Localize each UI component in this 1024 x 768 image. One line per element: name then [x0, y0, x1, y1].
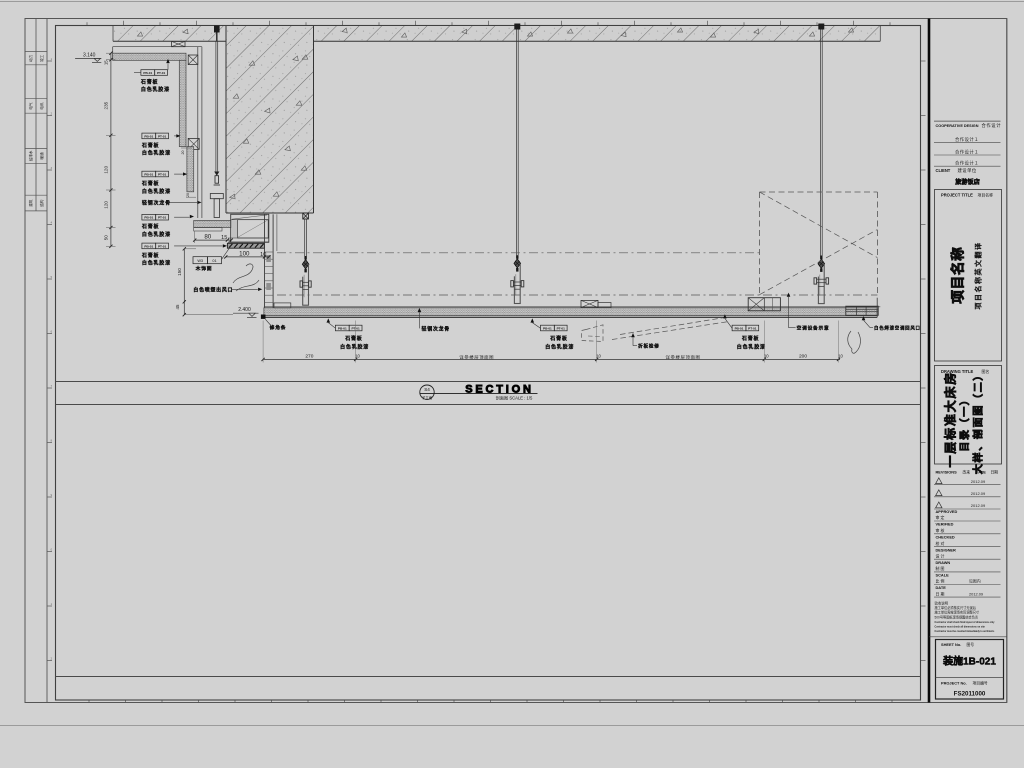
svg-text:合作设计１: 合作设计１: [955, 159, 979, 166]
svg-text:DATE: DATE: [976, 470, 987, 475]
svg-text:图号: 图号: [967, 642, 975, 647]
svg-text:白色乳胶漆: 白色乳胶漆: [340, 343, 369, 350]
svg-text:PB-01: PB-01: [143, 71, 152, 75]
svg-text:50: 50: [103, 235, 108, 241]
svg-text:20: 20: [186, 193, 190, 197]
svg-text:PB-01: PB-01: [735, 327, 744, 331]
svg-text:2012.09: 2012.09: [971, 479, 986, 484]
svg-text:白色乳胶漆: 白色乳胶漆: [545, 343, 574, 350]
svg-text:电气: 电气: [28, 102, 33, 110]
svg-text:日 期: 日 期: [936, 591, 945, 596]
svg-text:2012.09: 2012.09: [971, 491, 986, 496]
svg-text:白色乳胶漆: 白色乳胶漆: [141, 86, 170, 93]
svg-text:空调设备示意: 空调设备示意: [797, 325, 830, 332]
svg-text:动力: 动力: [28, 54, 33, 62]
svg-text:PROJECT No.: PROJECT No.: [941, 680, 967, 685]
svg-text:石膏板: 石膏板: [140, 78, 159, 85]
svg-text:120: 120: [103, 201, 108, 209]
svg-text:设 计: 设 计: [936, 554, 945, 559]
svg-text:白色乳胶漆: 白色乳胶漆: [737, 343, 766, 350]
svg-text:DATE: DATE: [936, 585, 947, 590]
svg-text:装施1B-021: 装施1B-021: [942, 655, 996, 668]
svg-text:日期: 日期: [991, 470, 999, 475]
svg-text:白色乳胶漆: 白色乳胶漆: [142, 231, 171, 238]
svg-text:比 例: 比 例: [936, 579, 945, 584]
svg-text:轻钢次龙骨: 轻钢次龙骨: [422, 326, 450, 333]
svg-text:石膏板: 石膏板: [344, 335, 363, 342]
svg-text:PB-01: PB-01: [144, 244, 153, 248]
svg-text:电讯: 电讯: [39, 102, 44, 110]
svg-text:VERIFIED: VERIFIED: [936, 522, 954, 527]
svg-text:PT-01: PT-01: [158, 173, 167, 177]
svg-text:轻钢次龙骨: 轻钢次龙骨: [142, 200, 171, 207]
svg-text:3.140: 3.140: [83, 53, 96, 59]
svg-text:木饰面: 木饰面: [195, 265, 213, 272]
svg-text:Contractor must check all dime: Contractor must check all dimensions on …: [935, 626, 986, 629]
svg-text:制 图: 制 图: [936, 566, 945, 571]
svg-text:SECTION: SECTION: [465, 384, 534, 396]
svg-text:15: 15: [103, 60, 108, 65]
svg-text:石膏板: 石膏板: [141, 142, 160, 149]
svg-text:2012.09: 2012.09: [969, 591, 983, 596]
svg-text:PT-01: PT-01: [158, 216, 167, 220]
svg-text:COOPERATIVE DESIGN: COOPERATIVE DESIGN: [936, 124, 979, 128]
svg-text:W3: W3: [197, 259, 203, 263]
svg-text:CLIENT: CLIENT: [936, 168, 951, 173]
svg-text:审 定: 审 定: [936, 515, 945, 520]
svg-text:10: 10: [260, 252, 266, 258]
svg-text:S4: S4: [424, 387, 430, 392]
svg-text:施工单位需按现场实际调整尺寸: 施工单位需按现场实际调整尺寸: [935, 610, 980, 615]
svg-text:大样、剖面图（二）: 大样、剖面图（二）: [971, 369, 984, 474]
svg-text:项目名称英文翻译: 项目名称英文翻译: [974, 242, 983, 310]
svg-text:改来: 改来: [963, 470, 971, 475]
svg-text:PB-01: PB-01: [144, 134, 153, 138]
svg-text:剖面图 SCALE : 1/5: 剖面图 SCALE : 1/5: [496, 395, 533, 402]
svg-text:270: 270: [305, 354, 313, 360]
svg-text:10: 10: [355, 354, 360, 359]
svg-text:白色乳胶漆: 白色乳胶漆: [142, 150, 171, 157]
svg-text:施工单位必须核实尺寸无误后: 施工单位必须核实尺寸无误后: [935, 605, 977, 610]
svg-text:见图内: 见图内: [969, 579, 981, 584]
svg-text:旅游饭店: 旅游饭店: [954, 178, 980, 186]
svg-text:项目名称: 项目名称: [949, 246, 965, 303]
svg-text:PT-01: PT-01: [557, 327, 566, 331]
svg-text:Contractor must be counted imm: Contractor must be counted immediately t…: [935, 630, 995, 633]
svg-text:子立面: 子立面: [422, 395, 433, 400]
svg-text:FS2011000: FS2011000: [954, 691, 986, 698]
svg-text:REVISIONS: REVISIONS: [936, 470, 958, 475]
svg-text:结构: 结构: [39, 199, 44, 207]
svg-text:15: 15: [221, 235, 227, 241]
svg-text:100: 100: [239, 250, 250, 257]
svg-text:验收说明: 验收说明: [935, 601, 949, 606]
svg-text:2.400: 2.400: [238, 307, 251, 313]
svg-text:235: 235: [103, 101, 108, 109]
svg-text:石膏板: 石膏板: [141, 180, 160, 187]
svg-text:石膏板: 石膏板: [549, 335, 568, 342]
svg-text:45: 45: [175, 304, 180, 309]
svg-text:详参楼层顶面图: 详参楼层顶面图: [666, 354, 701, 361]
svg-text:01: 01: [212, 259, 216, 263]
svg-text:10: 10: [596, 354, 601, 359]
svg-text:审 核: 审 核: [936, 528, 945, 533]
svg-text:白色乳胶漆: 白色乳胶漆: [142, 188, 171, 195]
svg-text:PB-01: PB-01: [338, 327, 347, 331]
svg-text:PB-01: PB-01: [144, 173, 153, 177]
svg-text:目录（一）: 目录（一）: [958, 394, 971, 452]
svg-text:石膏板: 石膏板: [741, 335, 760, 342]
svg-text:一层标准大床房: 一层标准大床房: [943, 371, 958, 468]
svg-text:PROJECT TITLE: PROJECT TITLE: [941, 192, 973, 197]
svg-text:Contractor shall check final l: Contractor shall check final layout of d…: [935, 621, 996, 624]
svg-text:折板检修: 折板检修: [638, 343, 660, 350]
svg-text:PT-01: PT-01: [158, 244, 167, 248]
svg-text:白色烤漆空调回风口: 白色烤漆空调回风口: [874, 325, 921, 332]
svg-text:石膏板: 石膏板: [141, 223, 160, 230]
svg-text:PB-01: PB-01: [144, 216, 153, 220]
svg-text:PT-01: PT-01: [748, 327, 757, 331]
svg-text:SCALE: SCALE: [936, 572, 950, 577]
svg-text:暖通: 暖通: [39, 152, 44, 160]
svg-text:石膏板: 石膏板: [141, 252, 160, 259]
svg-text:CHECKED: CHECKED: [936, 535, 955, 540]
svg-text:建设单位: 建设单位: [958, 167, 977, 174]
svg-text:合作设计１: 合作设计１: [955, 148, 979, 155]
svg-text:项目名称: 项目名称: [978, 192, 994, 197]
svg-text:150: 150: [177, 268, 182, 276]
svg-text:详参楼层顶面图: 详参楼层顶面图: [459, 354, 494, 361]
svg-text:120: 120: [103, 166, 108, 174]
svg-text:80: 80: [204, 233, 211, 240]
svg-text:DESIGNER: DESIGNER: [936, 547, 957, 552]
svg-text:白色喷塑出风口: 白色喷塑出风口: [193, 286, 233, 293]
svg-text:SHEET No.: SHEET No.: [941, 642, 961, 647]
svg-text:PT-01: PT-01: [158, 134, 167, 138]
svg-text:修角条: 修角条: [269, 324, 287, 331]
svg-text:合作设计１: 合作设计１: [955, 136, 979, 143]
svg-text:2012.09: 2012.09: [971, 503, 986, 508]
svg-text:DRAWN: DRAWN: [936, 560, 951, 565]
svg-text:给排水: 给排水: [28, 150, 33, 161]
svg-text:合作设计: 合作设计: [982, 122, 1002, 129]
svg-text:500号等图纸现场提醒综合负责: 500号等图纸现场提醒综合负责: [935, 614, 979, 619]
svg-text:建筑: 建筑: [28, 199, 33, 207]
svg-text:PB-01: PB-01: [543, 327, 552, 331]
svg-text:10: 10: [838, 354, 843, 359]
svg-text:竣工: 竣工: [39, 54, 44, 62]
svg-text:200: 200: [799, 354, 807, 360]
svg-text:20: 20: [181, 151, 185, 155]
svg-text:10: 10: [764, 354, 769, 359]
svg-text:APPROVED: APPROVED: [936, 509, 958, 514]
svg-text:PT-01: PT-01: [157, 71, 166, 75]
svg-text:校 对: 校 对: [936, 541, 945, 546]
svg-text:项目编号: 项目编号: [973, 680, 988, 685]
svg-text:白色乳胶漆: 白色乳胶漆: [142, 260, 171, 267]
